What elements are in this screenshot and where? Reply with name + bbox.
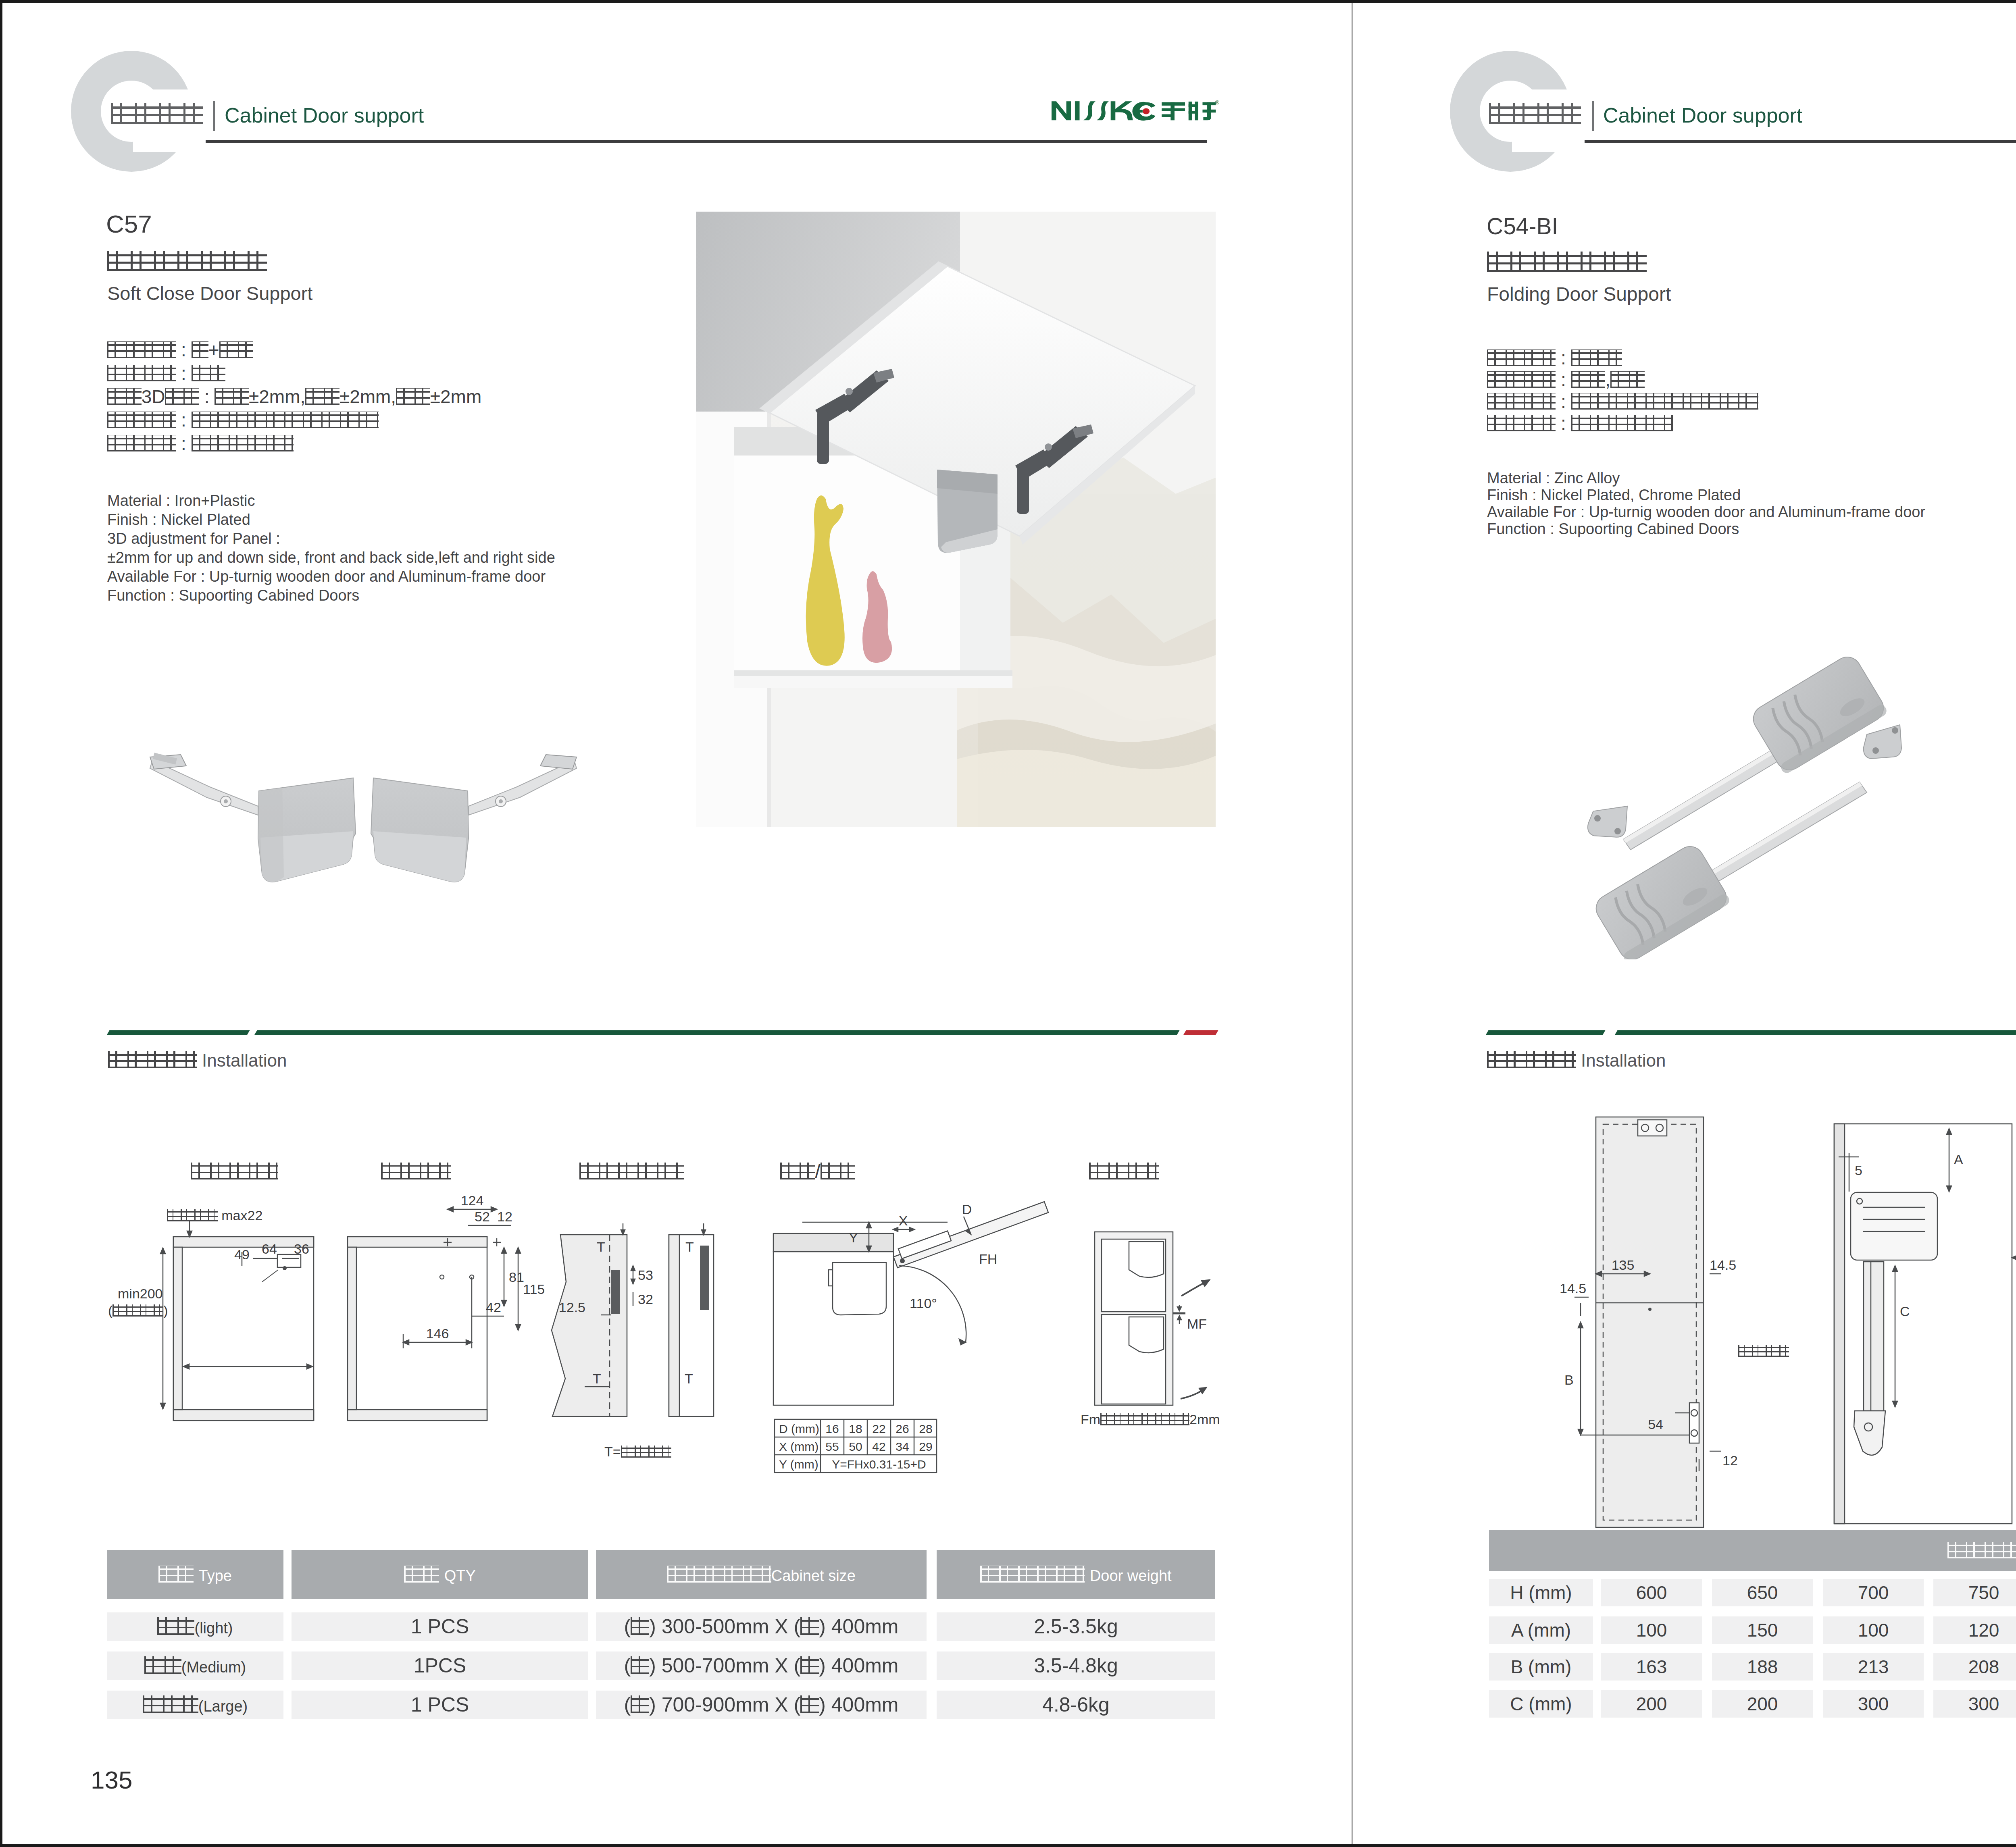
svg-text:Y=FHx0.31-15+D: Y=FHx0.31-15+D — [832, 1458, 926, 1471]
svg-text:D (mm): D (mm) — [779, 1422, 819, 1435]
svg-text:®: ® — [1215, 100, 1219, 105]
svg-text:42: 42 — [486, 1300, 501, 1315]
svg-text:42: 42 — [872, 1440, 885, 1453]
svg-text:X (mm): X (mm) — [779, 1440, 818, 1453]
svg-text:22: 22 — [872, 1422, 885, 1435]
svg-text:135: 135 — [1612, 1257, 1635, 1273]
svg-text:MF: MF — [1187, 1316, 1207, 1331]
svg-text:64: 64 — [262, 1241, 277, 1256]
svg-text:55: 55 — [825, 1440, 839, 1453]
svg-text:36: 36 — [294, 1241, 309, 1256]
svg-text:52: 52 — [475, 1209, 490, 1224]
svg-text:12: 12 — [497, 1209, 512, 1224]
svg-text:X: X — [899, 1213, 908, 1228]
svg-text:32: 32 — [638, 1292, 653, 1307]
svg-text:81: 81 — [509, 1269, 524, 1285]
svg-text:T: T — [685, 1371, 693, 1386]
svg-text:D: D — [962, 1202, 972, 1217]
svg-text:115: 115 — [523, 1281, 545, 1297]
svg-text:110°: 110° — [910, 1296, 937, 1311]
svg-text:C: C — [1900, 1304, 1910, 1319]
svg-text:53: 53 — [638, 1267, 653, 1283]
svg-text:5: 5 — [1855, 1163, 1862, 1178]
svg-text:T: T — [685, 1239, 694, 1254]
svg-text:14.5: 14.5 — [1560, 1281, 1586, 1296]
svg-text:12: 12 — [1722, 1453, 1738, 1468]
svg-text:A: A — [1954, 1152, 1963, 1167]
svg-text:18: 18 — [849, 1422, 862, 1435]
svg-text:49: 49 — [234, 1247, 250, 1262]
svg-text:12.5: 12.5 — [559, 1300, 585, 1315]
svg-text:14.5: 14.5 — [1710, 1257, 1736, 1273]
svg-text:T: T — [597, 1239, 605, 1254]
svg-text:146: 146 — [426, 1326, 449, 1341]
svg-text:54: 54 — [1648, 1416, 1663, 1432]
svg-text:34: 34 — [896, 1440, 909, 1453]
svg-text:29: 29 — [919, 1440, 932, 1453]
svg-text:26: 26 — [896, 1422, 909, 1435]
svg-text:Y (mm): Y (mm) — [779, 1458, 818, 1471]
svg-text:50: 50 — [849, 1440, 862, 1453]
svg-text:B: B — [1564, 1372, 1574, 1387]
svg-text:Y: Y — [849, 1230, 858, 1245]
svg-text:28: 28 — [919, 1422, 932, 1435]
svg-text:FH: FH — [979, 1251, 997, 1267]
svg-text:16: 16 — [825, 1422, 839, 1435]
svg-text:124: 124 — [461, 1193, 484, 1208]
svg-text:T: T — [593, 1371, 601, 1386]
